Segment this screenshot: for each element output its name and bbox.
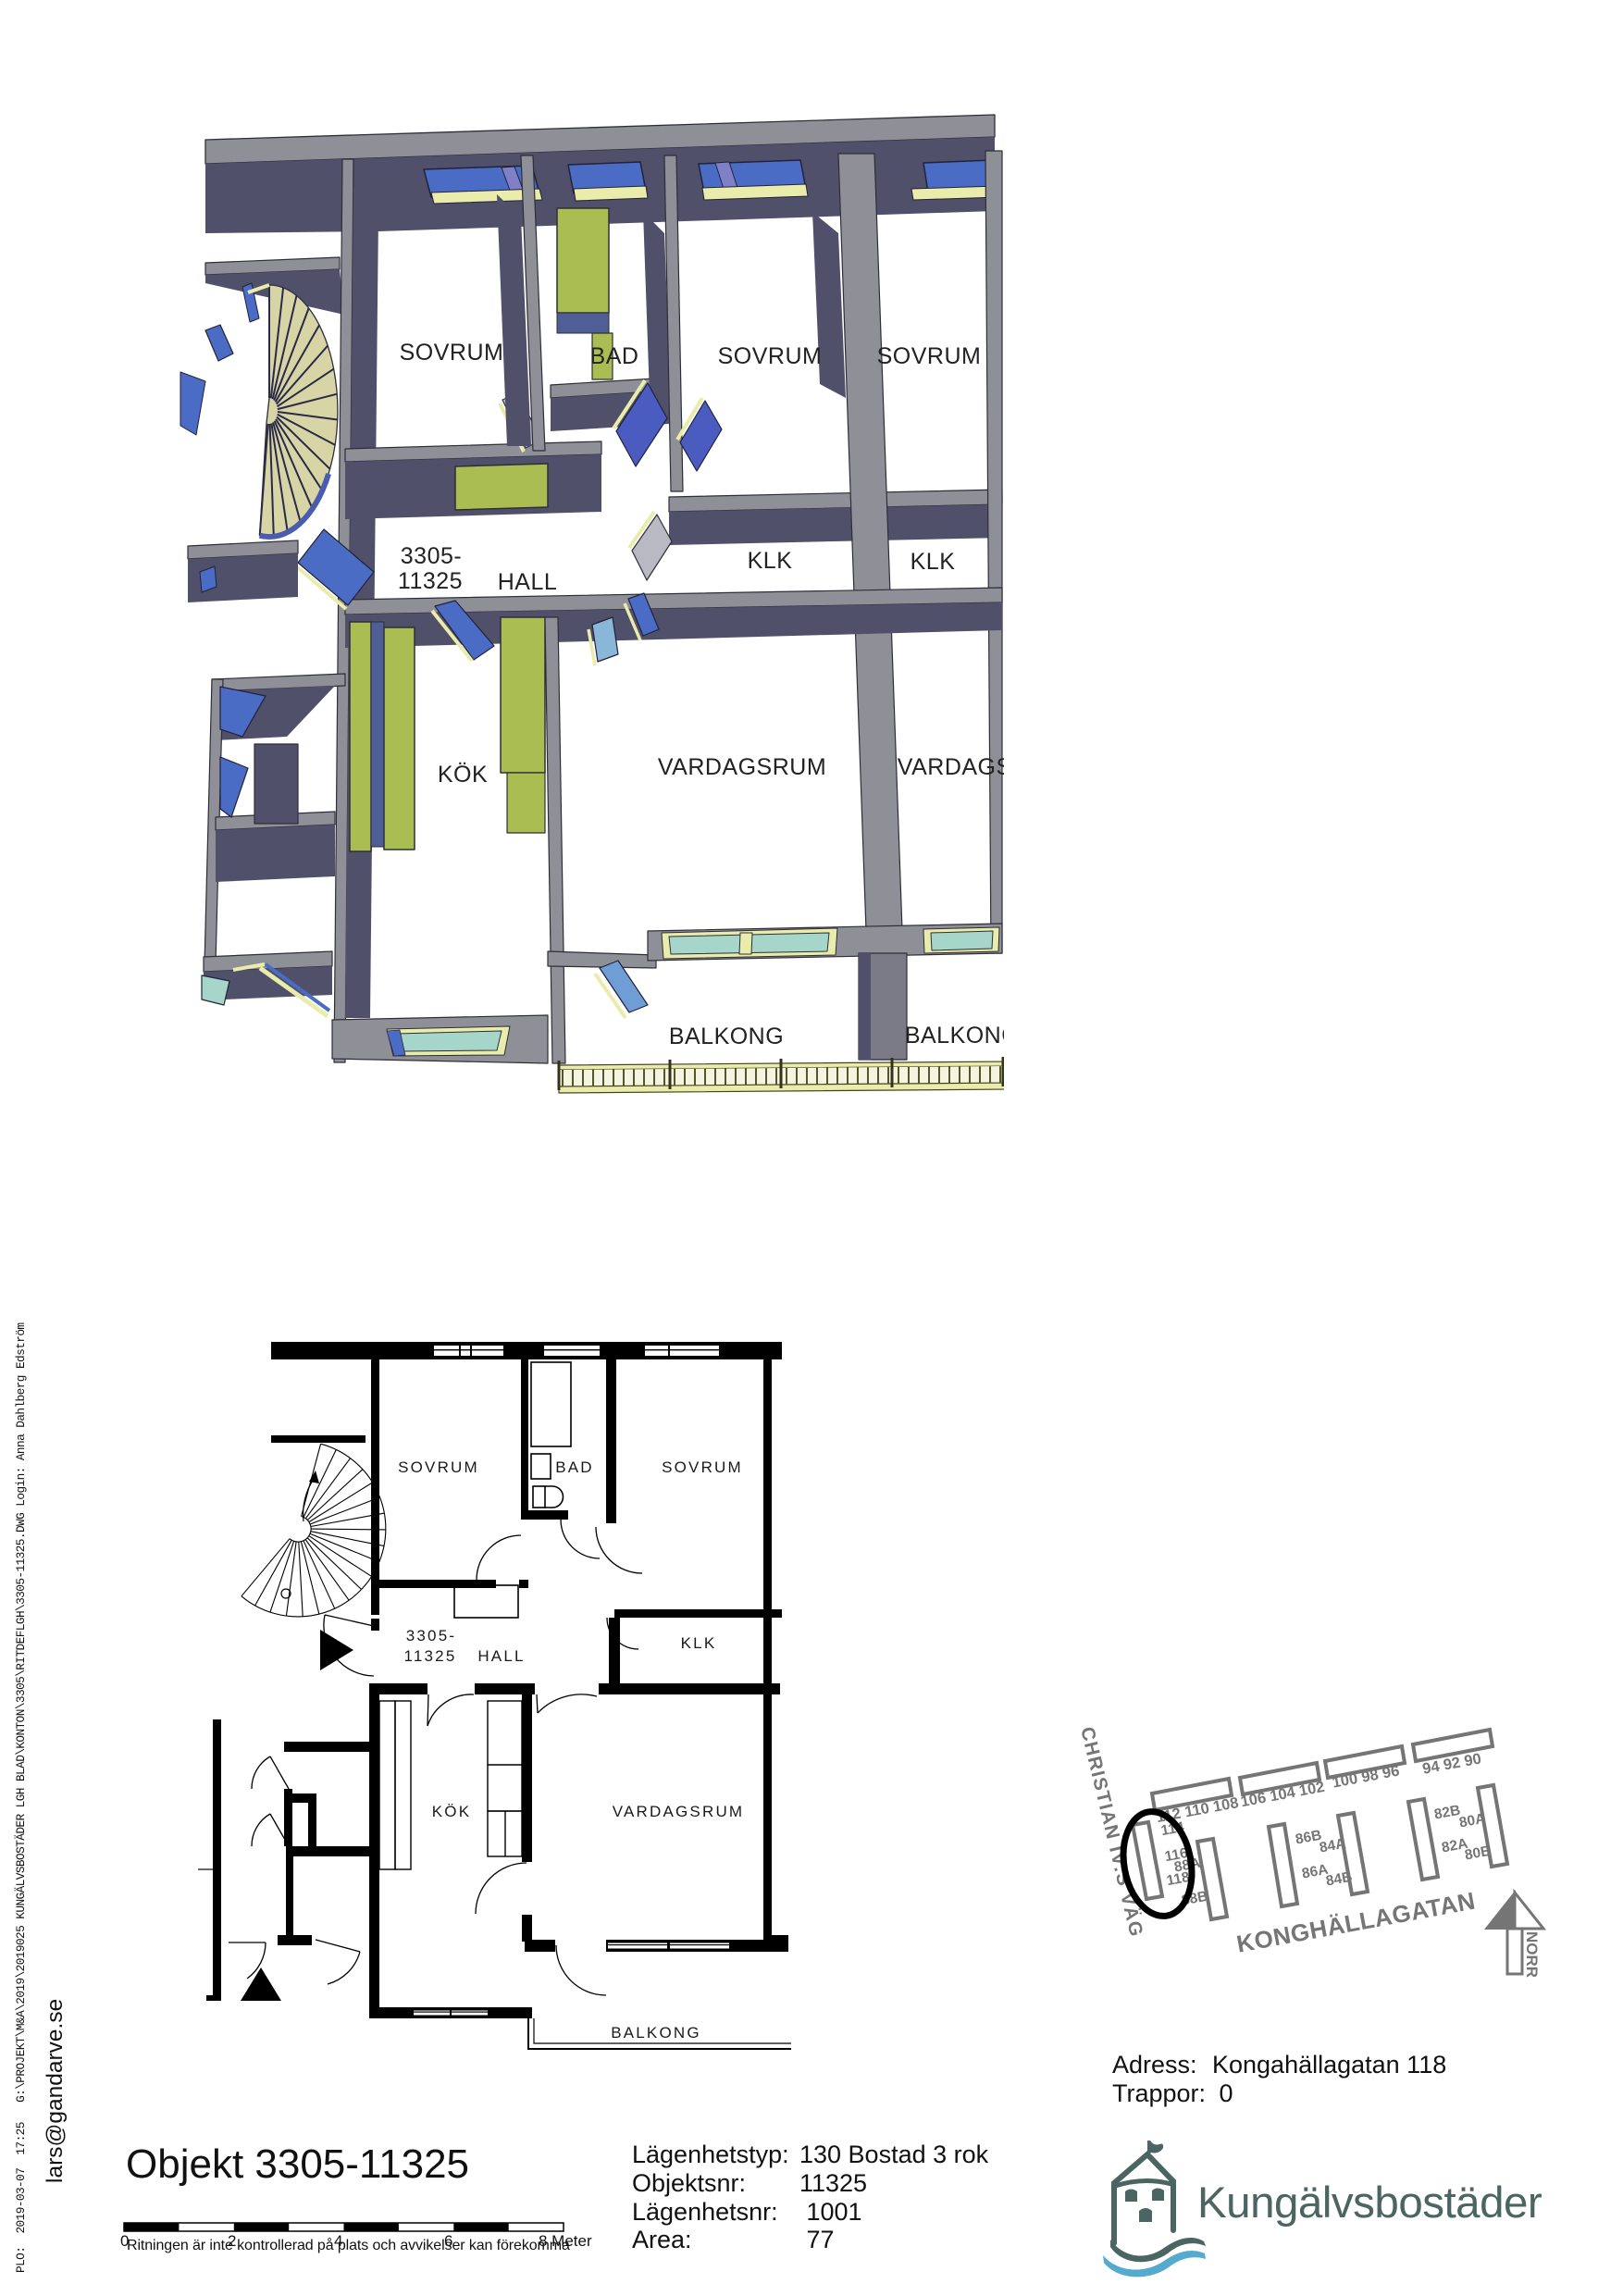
svg-text:3305-: 3305- [406,1627,456,1644]
svg-text:11325: 11325 [403,1647,456,1665]
svg-text:BALKONG: BALKONG [611,2024,701,2042]
svg-text:KÖK: KÖK [432,1803,472,1820]
svg-text:SOVRUM: SOVRUM [398,1458,479,1476]
svg-text:KLK: KLK [681,1634,717,1652]
svg-text:SOVRUM: SOVRUM [662,1458,743,1476]
svg-text:HALL: HALL [477,1647,525,1665]
svg-text:VARDAGSRUM: VARDAGSRUM [613,1803,745,1820]
svg-text:BAD: BAD [555,1458,594,1476]
